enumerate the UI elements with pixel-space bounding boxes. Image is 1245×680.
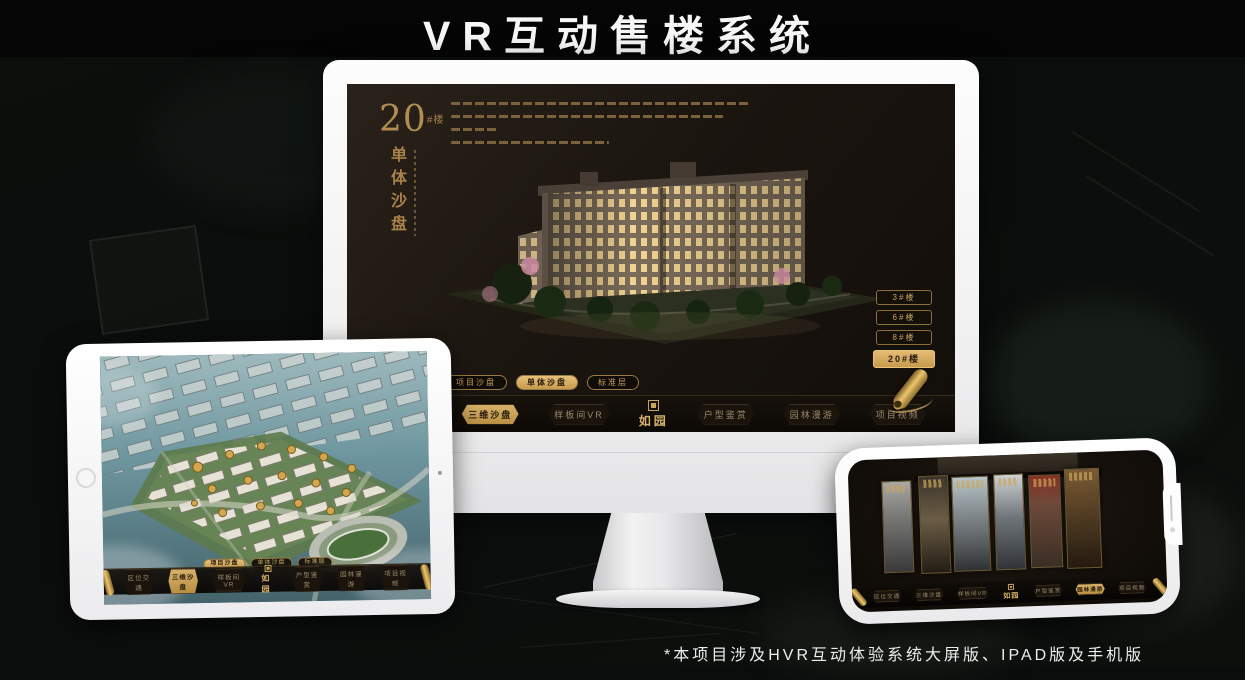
bg-photo-frame — [89, 225, 209, 335]
phone-nav-3d-sandbox[interactable]: 三维沙盘 — [912, 588, 946, 601]
tablet-nav-project-video[interactable]: 项目视频 — [378, 564, 413, 591]
phone-speaker-icon — [1170, 495, 1173, 521]
gallery-panel-tower[interactable] — [993, 473, 1026, 570]
phone-notch — [1162, 483, 1182, 546]
tablet-home-button[interactable] — [76, 468, 96, 488]
brand-logo-text: 如园 — [639, 412, 669, 429]
phone-camera-icon — [1170, 527, 1175, 532]
seal-icon — [648, 400, 659, 411]
gallery-panel-poster[interactable] — [1028, 474, 1063, 568]
nav-garden-roam[interactable]: 园林漫游 — [779, 404, 845, 425]
seal-icon — [1008, 583, 1014, 589]
nav-floorplan-gallery[interactable]: 户型鉴赏 — [693, 404, 759, 425]
floor-button-6[interactable]: 6#楼 — [876, 310, 932, 325]
tablet-nav-3d-sandbox[interactable]: 三维沙盘 — [166, 568, 201, 595]
tablet-brand-logo-text: 如园 — [261, 572, 276, 594]
nav-3d-sandbox[interactable]: 三维沙盘 — [457, 404, 523, 425]
footnote-text: *本项目涉及HVR互动体验系统大屏版、IPAD版及手机版 — [664, 641, 1144, 665]
gallery-panel-kitchen[interactable] — [918, 475, 951, 574]
tab-single-sandbox[interactable]: 单体沙盘 — [516, 375, 578, 390]
phone-screen: 区位交通 三维沙盘 样板间VR 如园 户型鉴赏 园林漫游 项目视频 — [847, 450, 1167, 613]
tab-standard-floor[interactable]: 标准层 — [587, 375, 639, 390]
tab-project-sandbox[interactable]: 项目沙盘 — [445, 375, 507, 390]
phone-nav-location-traffic[interactable]: 区位交通 — [870, 590, 904, 603]
building-subtitle: 单体沙盘 — [385, 146, 409, 238]
phone-nav-project-video[interactable]: 项目视频 — [1115, 581, 1149, 594]
view-tab-group: 项目沙盘 单体沙盘 标准层 — [445, 375, 639, 390]
building-model-render[interactable] — [430, 144, 900, 376]
bg-map-line — [1071, 130, 1199, 211]
phone-nav-model-room-vr[interactable]: 样板间VR — [954, 587, 992, 600]
scroll-handle-right-icon[interactable] — [1152, 577, 1168, 597]
floor-button-3[interactable]: 3#楼 — [876, 290, 932, 305]
tablet-brand-logo: 如园 — [261, 564, 276, 594]
gallery-panel-shelf[interactable] — [1064, 468, 1102, 569]
scroll-icon[interactable] — [885, 364, 941, 424]
phone-brand-logo-text: 如园 — [1003, 590, 1019, 601]
seal-icon — [265, 564, 272, 571]
tablet-nav-model-room-vr[interactable]: 样板间VR — [210, 568, 248, 592]
phone-nav-garden-roam[interactable]: 园林漫游 — [1073, 583, 1107, 596]
stage: VR互动售楼系统 20#楼 单体沙盘 — [0, 0, 1245, 666]
phone-nav-floorplan-gallery[interactable]: 户型鉴赏 — [1031, 584, 1065, 597]
floor-button-8[interactable]: 8#楼 — [876, 330, 932, 345]
floor-button-group: 3#楼 6#楼 8#楼 20#楼 — [873, 290, 935, 368]
building-unit: #楼 — [427, 115, 445, 126]
phone-brand-logo: 如园 — [1003, 583, 1020, 601]
nav-model-room-vr[interactable]: 样板间VR — [543, 404, 615, 425]
phone-device: 区位交通 三维沙盘 样板间VR 如园 户型鉴赏 园林漫游 项目视频 — [834, 437, 1181, 625]
tablet-nav-garden-roam[interactable]: 园林漫游 — [334, 565, 369, 592]
scroll-handle-left-icon[interactable] — [850, 587, 868, 607]
bg-blot — [990, 300, 1210, 460]
building-number: 20 — [379, 99, 427, 140]
gallery-panel-building[interactable] — [951, 476, 991, 572]
tablet-device: 项目沙盘 单体沙盘 标准层 区位交通 三维沙盘 样板间VR 如园 户型鉴赏 园林… — [66, 338, 456, 621]
building-subtitle-en-decor — [414, 150, 416, 236]
tablet-camera-icon — [438, 471, 442, 475]
monitor-stand-neck — [593, 513, 723, 597]
brand-logo: 如园 — [639, 400, 669, 429]
tablet-nav-floorplan-gallery[interactable]: 户型鉴赏 — [290, 565, 325, 592]
phone-navbar: 区位交通 三维沙盘 样板间VR 如园 户型鉴赏 园林漫游 项目视频 — [852, 575, 1168, 608]
page-title: VR互动售楼系统 — [0, 2, 1245, 62]
scroll-handle-right-icon[interactable] — [420, 563, 432, 590]
tablet-nav-location-traffic[interactable]: 区位交通 — [122, 568, 157, 595]
monitor-stand-base — [556, 590, 760, 608]
gallery-panel-interior[interactable] — [881, 480, 914, 573]
tablet-screen: 项目沙盘 单体沙盘 标准层 区位交通 三维沙盘 样板间VR 如园 户型鉴赏 园林… — [100, 351, 431, 605]
scroll-handle-left-icon[interactable] — [101, 569, 115, 596]
bg-map-line — [1086, 175, 1214, 256]
